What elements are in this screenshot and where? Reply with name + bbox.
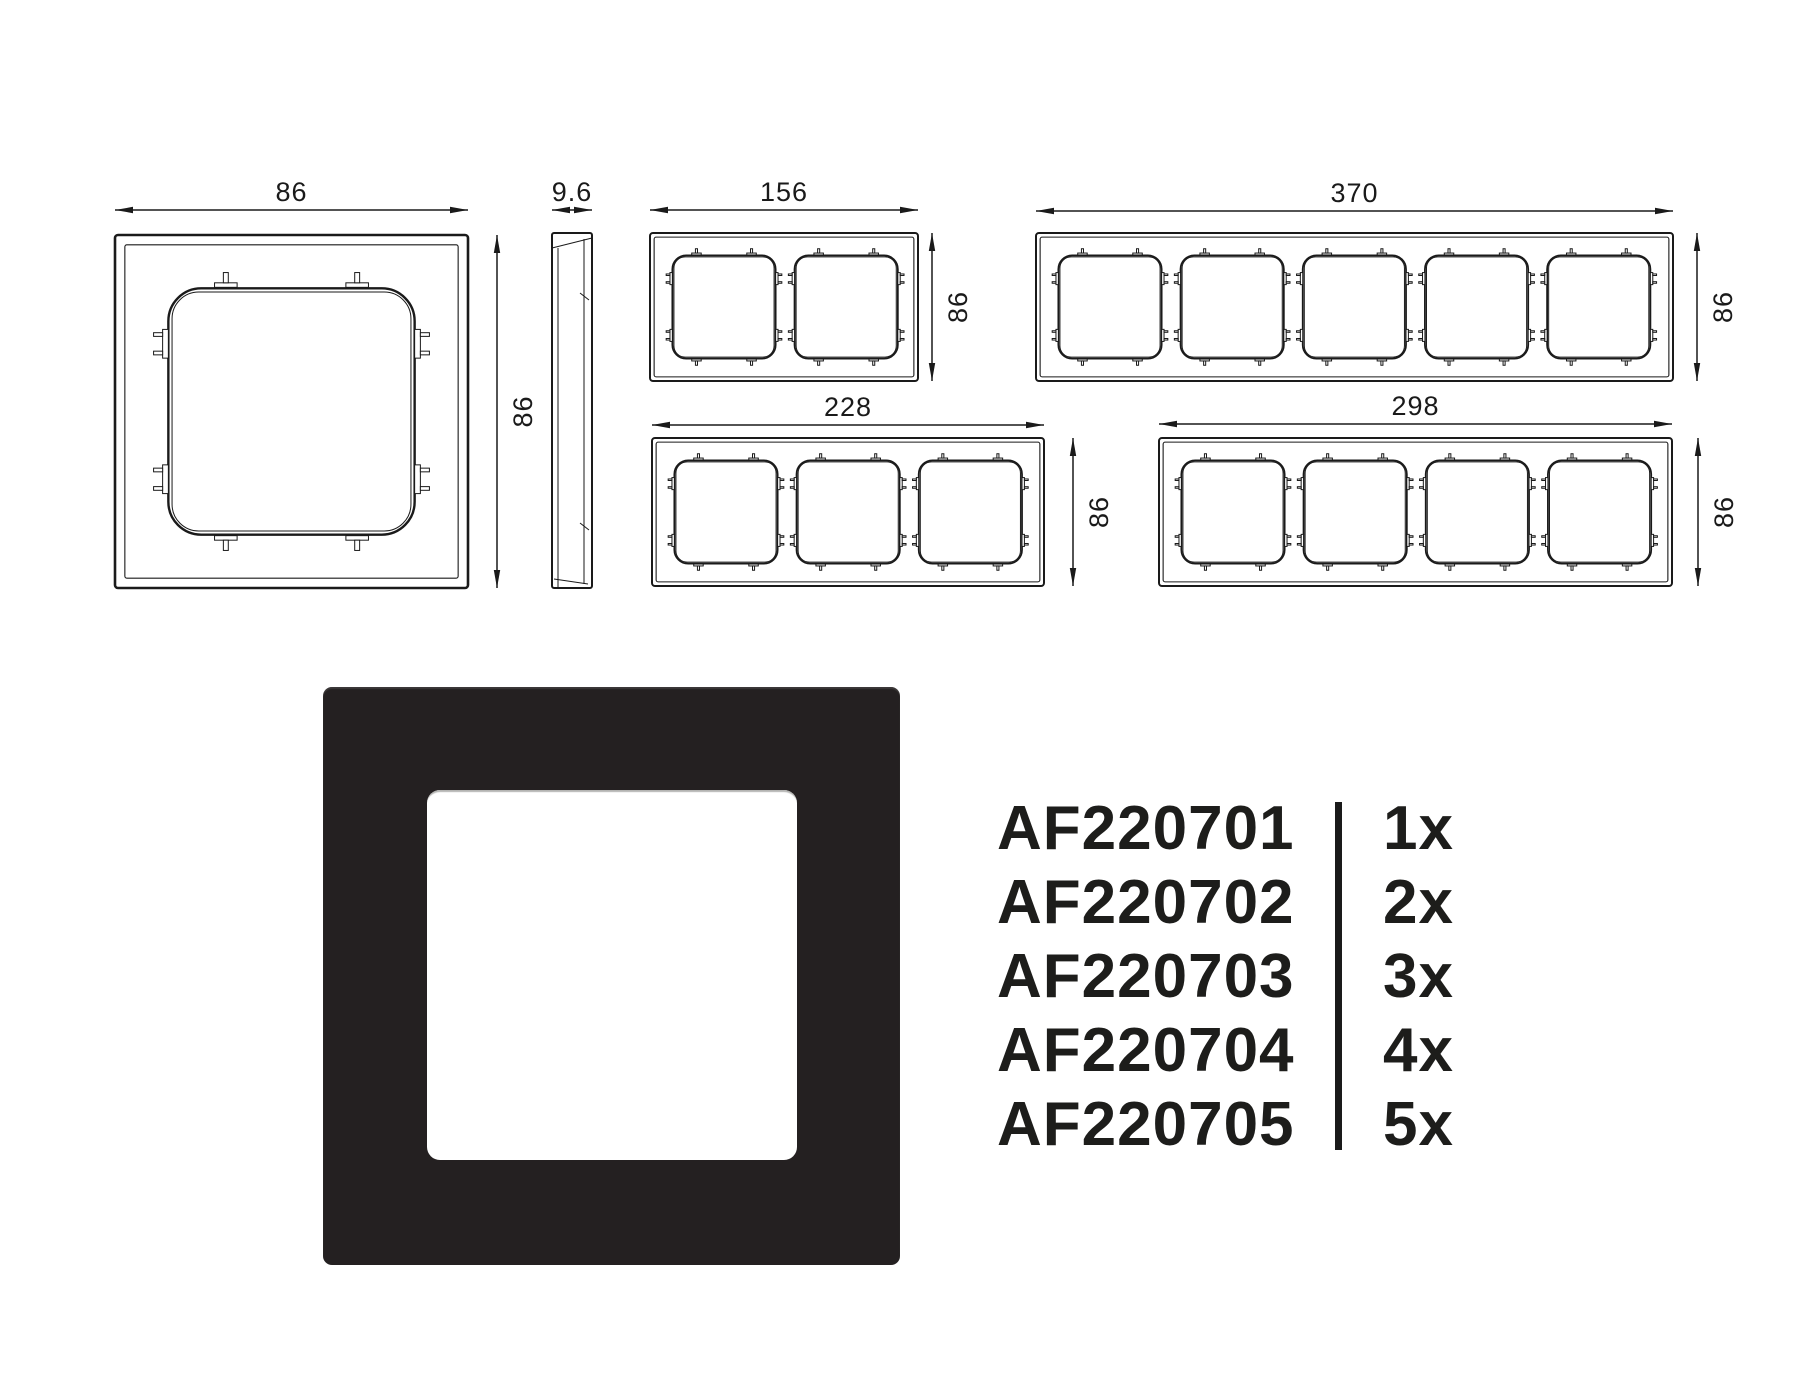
frame-1-gang-front-view: 8686	[115, 177, 538, 588]
product-code: AF220701	[997, 792, 1295, 866]
dimension-label: 156	[760, 177, 808, 207]
frame-5-gang-front-view: 37086	[1036, 178, 1738, 381]
dimension-label: 86	[1709, 496, 1739, 528]
dimension-label: 86	[1084, 496, 1114, 528]
product-code: AF220704	[997, 1014, 1295, 1088]
product-sheet: 8686156863708622886298869.6 AF220701AF22…	[0, 0, 1800, 1400]
product-code: AF220703	[997, 940, 1295, 1014]
frame-3-gang-front-view: 22886	[652, 392, 1114, 586]
dimension-label: 298	[1391, 391, 1439, 421]
quantity-value: 4x	[1383, 1014, 1454, 1088]
dimension-label: 9.6	[552, 177, 593, 207]
list-divider	[1335, 802, 1342, 1150]
dimension-label: 86	[943, 291, 973, 323]
quantity-column: 1x2x3x4x5x	[1383, 792, 1454, 1162]
technical-drawings: 8686156863708622886298869.6	[0, 0, 1800, 1400]
product-code: AF220705	[997, 1088, 1295, 1162]
quantity-value: 1x	[1383, 792, 1454, 866]
dimension-label: 86	[275, 177, 307, 207]
frame-4-gang-front-view: 29886	[1159, 391, 1739, 586]
frame-cutout-opening	[427, 790, 797, 1160]
quantity-value: 2x	[1383, 866, 1454, 940]
frame-side-profile-view: 9.6	[552, 177, 593, 588]
black-frame-product-photo	[323, 687, 900, 1265]
dimension-label: 370	[1330, 178, 1378, 208]
frame-2-gang-front-view: 15686	[650, 177, 973, 381]
quantity-value: 5x	[1383, 1088, 1454, 1162]
product-code-column: AF220701AF220702AF220703AF220704AF220705	[997, 792, 1295, 1162]
dimension-label: 86	[508, 395, 538, 427]
dimension-label: 86	[1708, 291, 1738, 323]
product-code: AF220702	[997, 866, 1295, 940]
quantity-value: 3x	[1383, 940, 1454, 1014]
dimension-label: 228	[824, 392, 872, 422]
